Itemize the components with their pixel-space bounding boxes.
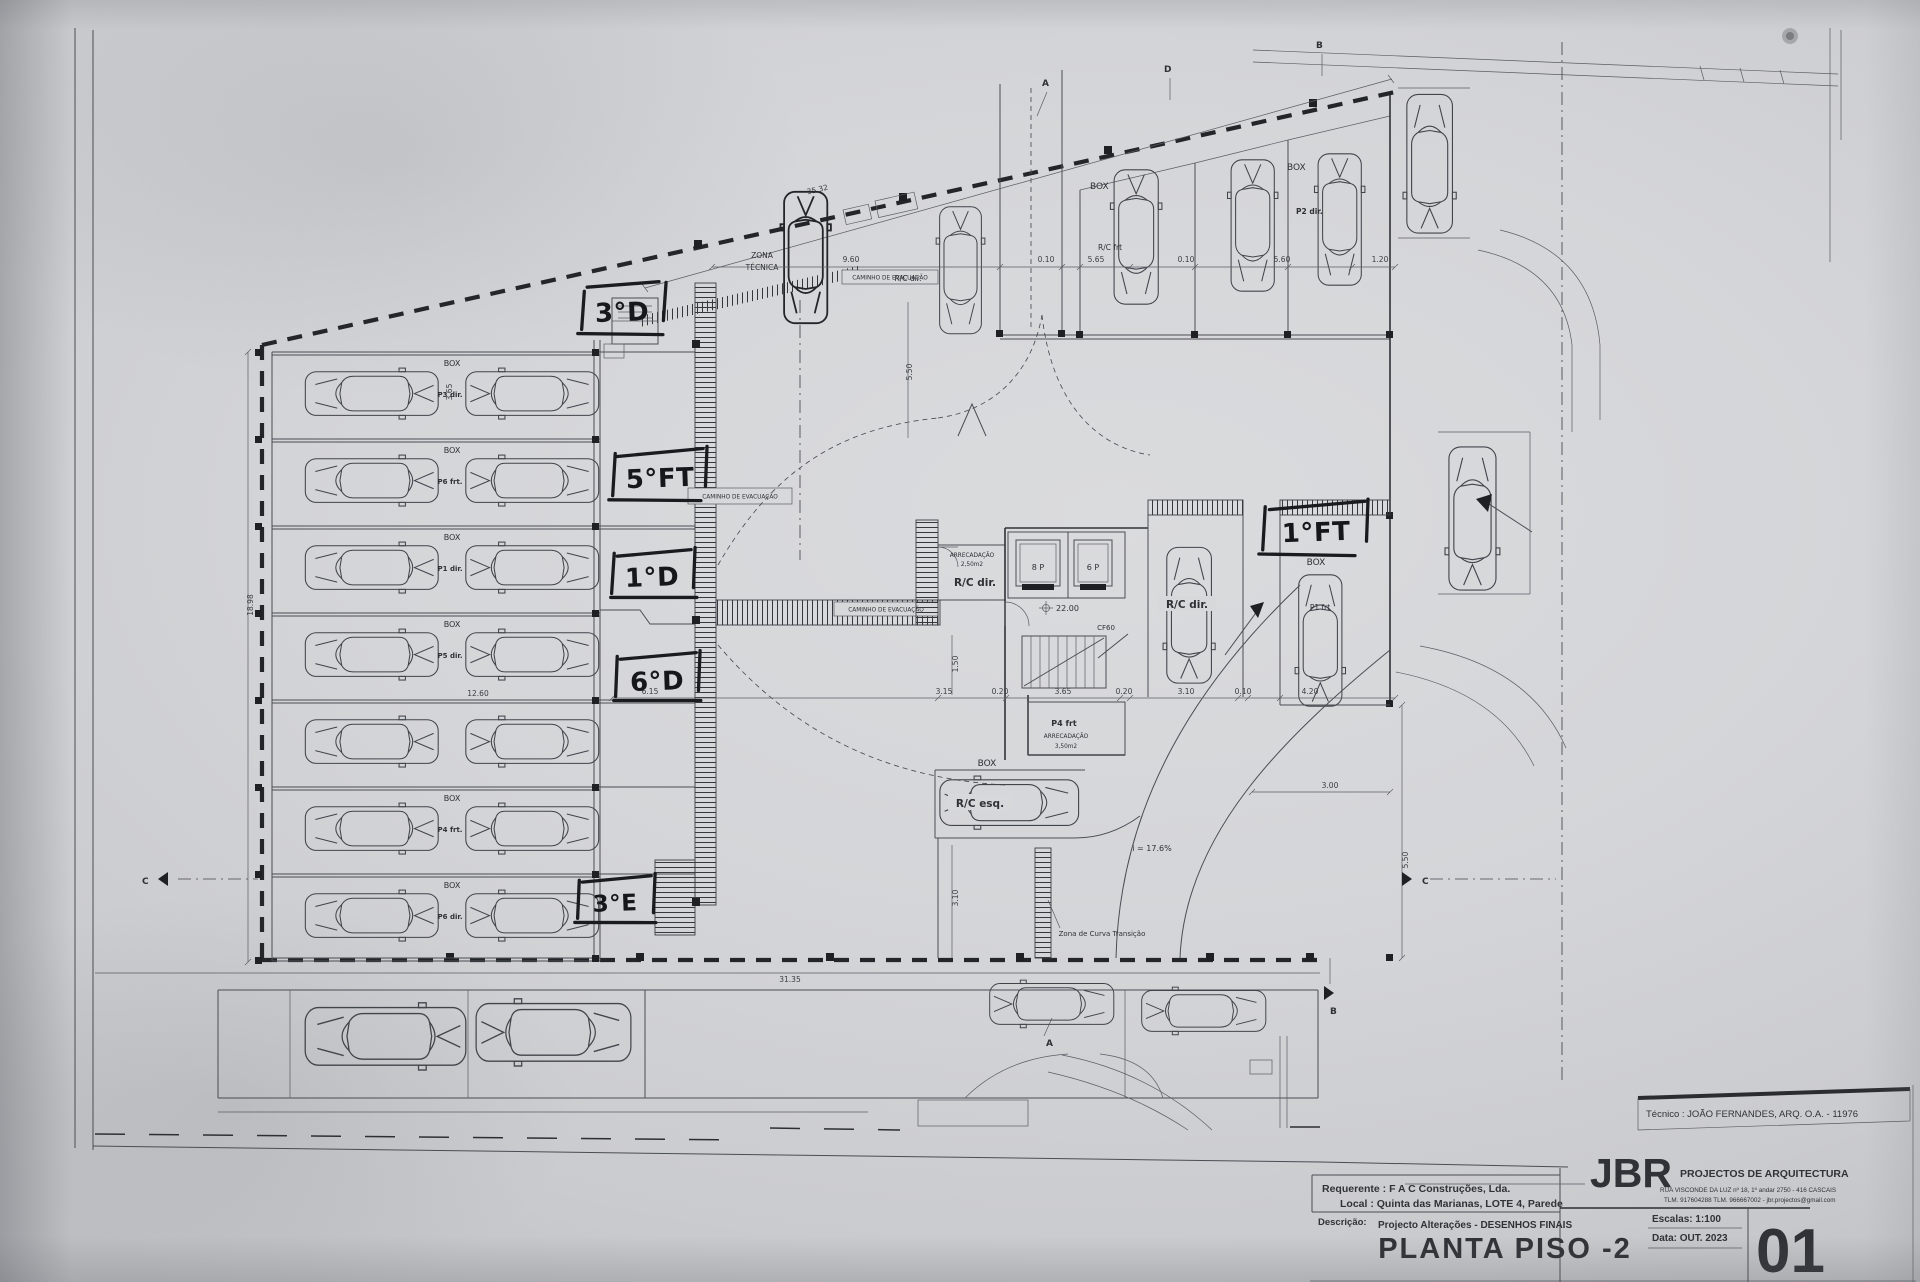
parked-car bbox=[990, 980, 1114, 1028]
building-core: ARRECADAÇÃO 2,50m2 R/C dir. 8 P 6 P 22.0… bbox=[916, 520, 1148, 760]
escala-line: Escalas: 1:100 bbox=[1652, 1214, 1721, 1225]
parked-car bbox=[305, 629, 438, 680]
arrecadacao-label: ARRECADAÇÃO bbox=[950, 552, 995, 559]
top-boundary-detail: 35.32 bbox=[640, 75, 1394, 327]
stall-id: P5 dir. bbox=[438, 652, 463, 660]
parked-car bbox=[1110, 170, 1162, 304]
firm-address-1: RUA VISCONDE DA LUZ nº 18, 1º andar 2750… bbox=[1660, 1187, 1836, 1194]
right-yard bbox=[1253, 42, 1838, 1080]
svg-text:1°D: 1°D bbox=[625, 562, 680, 594]
caminho-label: CAMINHO DE EVACUAÇÃO bbox=[702, 494, 778, 501]
elevator-8p: 8 P bbox=[1032, 563, 1045, 572]
dim-0-10: 0.10 bbox=[1178, 255, 1195, 264]
dim-line-top: 9.60 0.10 5.65 0.10 5.60 1.20 bbox=[709, 255, 1398, 270]
ramp-arrow bbox=[958, 404, 986, 436]
dim-3-10: 3.10 bbox=[1178, 687, 1195, 696]
requerente-line: Requerente : F A C Construções, Lda. bbox=[1322, 1183, 1510, 1195]
box-label: BOX bbox=[1307, 558, 1326, 568]
slope-label: i = 17.6% bbox=[1132, 844, 1172, 853]
stall-box-label: BOX bbox=[444, 446, 461, 455]
left-parking-bank: BOX P3 dir. BOX P6 frt. BOX P1 dir. BOX … bbox=[272, 340, 695, 962]
marker-b: B bbox=[1316, 41, 1323, 51]
parked-car bbox=[1403, 94, 1456, 233]
stall-id: P1 dir. bbox=[438, 565, 463, 573]
dim-1-50: 1.50 bbox=[951, 655, 960, 672]
parked-car bbox=[305, 803, 438, 854]
parked-car bbox=[305, 716, 438, 767]
dim-3-10: 3.10 bbox=[951, 889, 960, 906]
descricao-value: Projecto Alterações - DESENHOS FINAIS bbox=[1378, 1220, 1572, 1231]
sheet-number: 01 bbox=[1756, 1217, 1825, 1282]
box-label: BOX bbox=[1287, 163, 1306, 173]
rc-dir-label: R/C dir. bbox=[954, 577, 996, 589]
handwritten-3e: 3°E bbox=[573, 874, 657, 926]
stall-id: P6 frt. bbox=[438, 478, 463, 486]
parked-car bbox=[476, 999, 631, 1066]
parked-car bbox=[1315, 154, 1365, 285]
svg-text:1°FT: 1°FT bbox=[1281, 517, 1351, 549]
dim-5-60: 5.60 bbox=[1274, 255, 1291, 264]
dim-3-00: 3.00 bbox=[1322, 781, 1339, 790]
box-label: BOX bbox=[978, 759, 997, 769]
stall-id: P6 dir. bbox=[438, 913, 463, 921]
rc-frt-label: R/C frt bbox=[1098, 243, 1122, 252]
highlighted-car bbox=[781, 192, 831, 323]
parked-car bbox=[466, 716, 599, 767]
p4-frt-label: P4 frt bbox=[1051, 719, 1077, 728]
parked-car bbox=[466, 803, 599, 854]
stall-box-label: BOX bbox=[444, 881, 461, 890]
arrecadacao-area: 2,50m2 bbox=[961, 562, 984, 568]
stall-box-label: BOX bbox=[444, 533, 461, 542]
parked-car bbox=[1445, 447, 1500, 590]
stall-box-label: BOX bbox=[444, 620, 461, 629]
box-label: BOX bbox=[1090, 182, 1109, 192]
svg-text:3°E: 3°E bbox=[592, 890, 638, 918]
stall-id: P4 frt. bbox=[438, 826, 463, 834]
handwritten-3d: 3°D bbox=[576, 281, 668, 337]
arrecadacao-area: 3,50m2 bbox=[1055, 744, 1078, 750]
dim-0-10: 0.10 bbox=[1038, 255, 1055, 264]
entrance-and-top-stalls: R/C dir. BOX R/C frt BOX P2 dir. bbox=[781, 70, 1394, 961]
parked-car bbox=[936, 207, 985, 334]
caminho-label: CAMINHO DE EVACUAÇÃO bbox=[848, 607, 924, 614]
firm-name: PROJECTOS DE ARQUITECTURA bbox=[1680, 1168, 1849, 1180]
parked-car bbox=[466, 542, 599, 593]
dim-9-60: 9.60 bbox=[843, 255, 860, 264]
tecnico-line: Técnico : JOÃO FERNANDES, ARQ. O.A. - 11… bbox=[1646, 1109, 1858, 1120]
elevator-6p: 6 P bbox=[1087, 563, 1100, 572]
descricao-label: Descrição: bbox=[1318, 1217, 1367, 1228]
marker-a: A bbox=[1042, 79, 1049, 89]
misc-dims: 18.98 5.50 1.50 3.10 3.00 5.50 31.35 bbox=[245, 302, 1410, 984]
drawing-title: PLANTA PISO -2 bbox=[1378, 1233, 1632, 1265]
parked-car bbox=[466, 455, 599, 506]
p2-dir-label: P2 dir. bbox=[1296, 207, 1323, 216]
dim-3-65-row: 3.65 bbox=[445, 383, 454, 400]
evacuation-route-labels: CAMINHO DE EVACUAÇÃO CAMINHO DE EVACUAÇÃ… bbox=[688, 270, 938, 616]
dim-1-20: 1.20 bbox=[1372, 255, 1389, 264]
handwritten-1d: 1°D bbox=[609, 547, 697, 600]
marker-c: C bbox=[1422, 877, 1429, 887]
level-mark: 22.00 bbox=[1056, 604, 1079, 613]
local-line: Local : Quinta das Marianas, LOTE 4, Par… bbox=[1340, 1198, 1563, 1210]
parked-car bbox=[305, 542, 438, 593]
firm-address-2: TLM. 917604288 TLM. 966667002 - jbr.proj… bbox=[1664, 1197, 1836, 1204]
dim-18-98: 18.98 bbox=[246, 594, 255, 616]
zona-tecnica-label-2: TÉCNICA bbox=[745, 263, 780, 272]
svg-text:3°D: 3°D bbox=[595, 297, 650, 329]
dim-3-15: 3.15 bbox=[936, 687, 953, 696]
marker-a: A bbox=[1046, 1039, 1053, 1049]
bottom-parking-band bbox=[95, 973, 1320, 1140]
stall-box-label: BOX bbox=[444, 359, 461, 368]
dim-4-20: 4.20 bbox=[1302, 687, 1319, 696]
parked-car bbox=[305, 1003, 466, 1070]
parked-car bbox=[1163, 547, 1215, 683]
dim-5-50: 5.50 bbox=[905, 363, 914, 380]
dim-31-35: 31.35 bbox=[779, 975, 801, 984]
parked-car bbox=[305, 890, 438, 941]
parked-car bbox=[305, 455, 438, 506]
parked-car bbox=[305, 368, 438, 419]
handwritten-6d: 6°D bbox=[612, 650, 702, 703]
rc-dir-label: R/C dir. bbox=[1166, 599, 1208, 611]
svg-text:6°D: 6°D bbox=[630, 666, 685, 698]
dim-0-20: 0.20 bbox=[992, 687, 1009, 696]
dim-5-65: 5.65 bbox=[1088, 255, 1105, 264]
dim-0-20: 0.20 bbox=[1116, 687, 1133, 696]
parked-car bbox=[466, 629, 599, 680]
title-block: Técnico : JOÃO FERNANDES, ARQ. O.A. - 11… bbox=[1310, 1085, 1916, 1282]
rc-esq-label: R/C esq. bbox=[956, 798, 1004, 810]
stall-box-label: BOX bbox=[444, 794, 461, 803]
handwritten-annotations: 3°D 5°FT 1°D 6°D 3°E 1°FT bbox=[573, 281, 1370, 925]
zona-tecnica-label-1: ZONA bbox=[751, 251, 774, 260]
rc-dir-label: R/C dir. bbox=[895, 274, 922, 283]
p1-frt-label: P1 frt bbox=[1310, 603, 1330, 612]
svg-text:5°FT: 5°FT bbox=[625, 463, 695, 495]
rc-esq-stall: BOX R/C esq. bbox=[935, 759, 1140, 838]
marker-c: C bbox=[142, 877, 149, 887]
parked-car bbox=[466, 368, 599, 419]
right-stalls: R/C dir. BOX P1 frt bbox=[1148, 500, 1390, 706]
parked-car bbox=[1228, 160, 1278, 291]
cf60-door-label: CF60 bbox=[1097, 624, 1115, 632]
marker-d: D bbox=[1164, 65, 1171, 75]
dim-3-65: 3.65 bbox=[1055, 687, 1072, 696]
data-line: Data: OUT. 2023 bbox=[1652, 1233, 1728, 1244]
marker-b: B bbox=[1330, 1007, 1337, 1017]
dim-35-32: 35.32 bbox=[806, 183, 829, 197]
floor-plan-drawing: 35.32 ZONA TÉCNICA BOX P3 dir. BOX P6 fr… bbox=[0, 0, 1920, 1282]
parked-car bbox=[1142, 987, 1266, 1035]
sheet-frame bbox=[75, 28, 1841, 1167]
zona-curva-label: Zona de Curva Transição bbox=[1059, 930, 1146, 938]
dim-12-60: 12.60 bbox=[467, 689, 489, 698]
arrecadacao-label: ARRECADAÇÃO bbox=[1044, 733, 1089, 740]
dim-5-50: 5.50 bbox=[1401, 851, 1410, 868]
dim-0-10: 0.10 bbox=[1235, 687, 1252, 696]
